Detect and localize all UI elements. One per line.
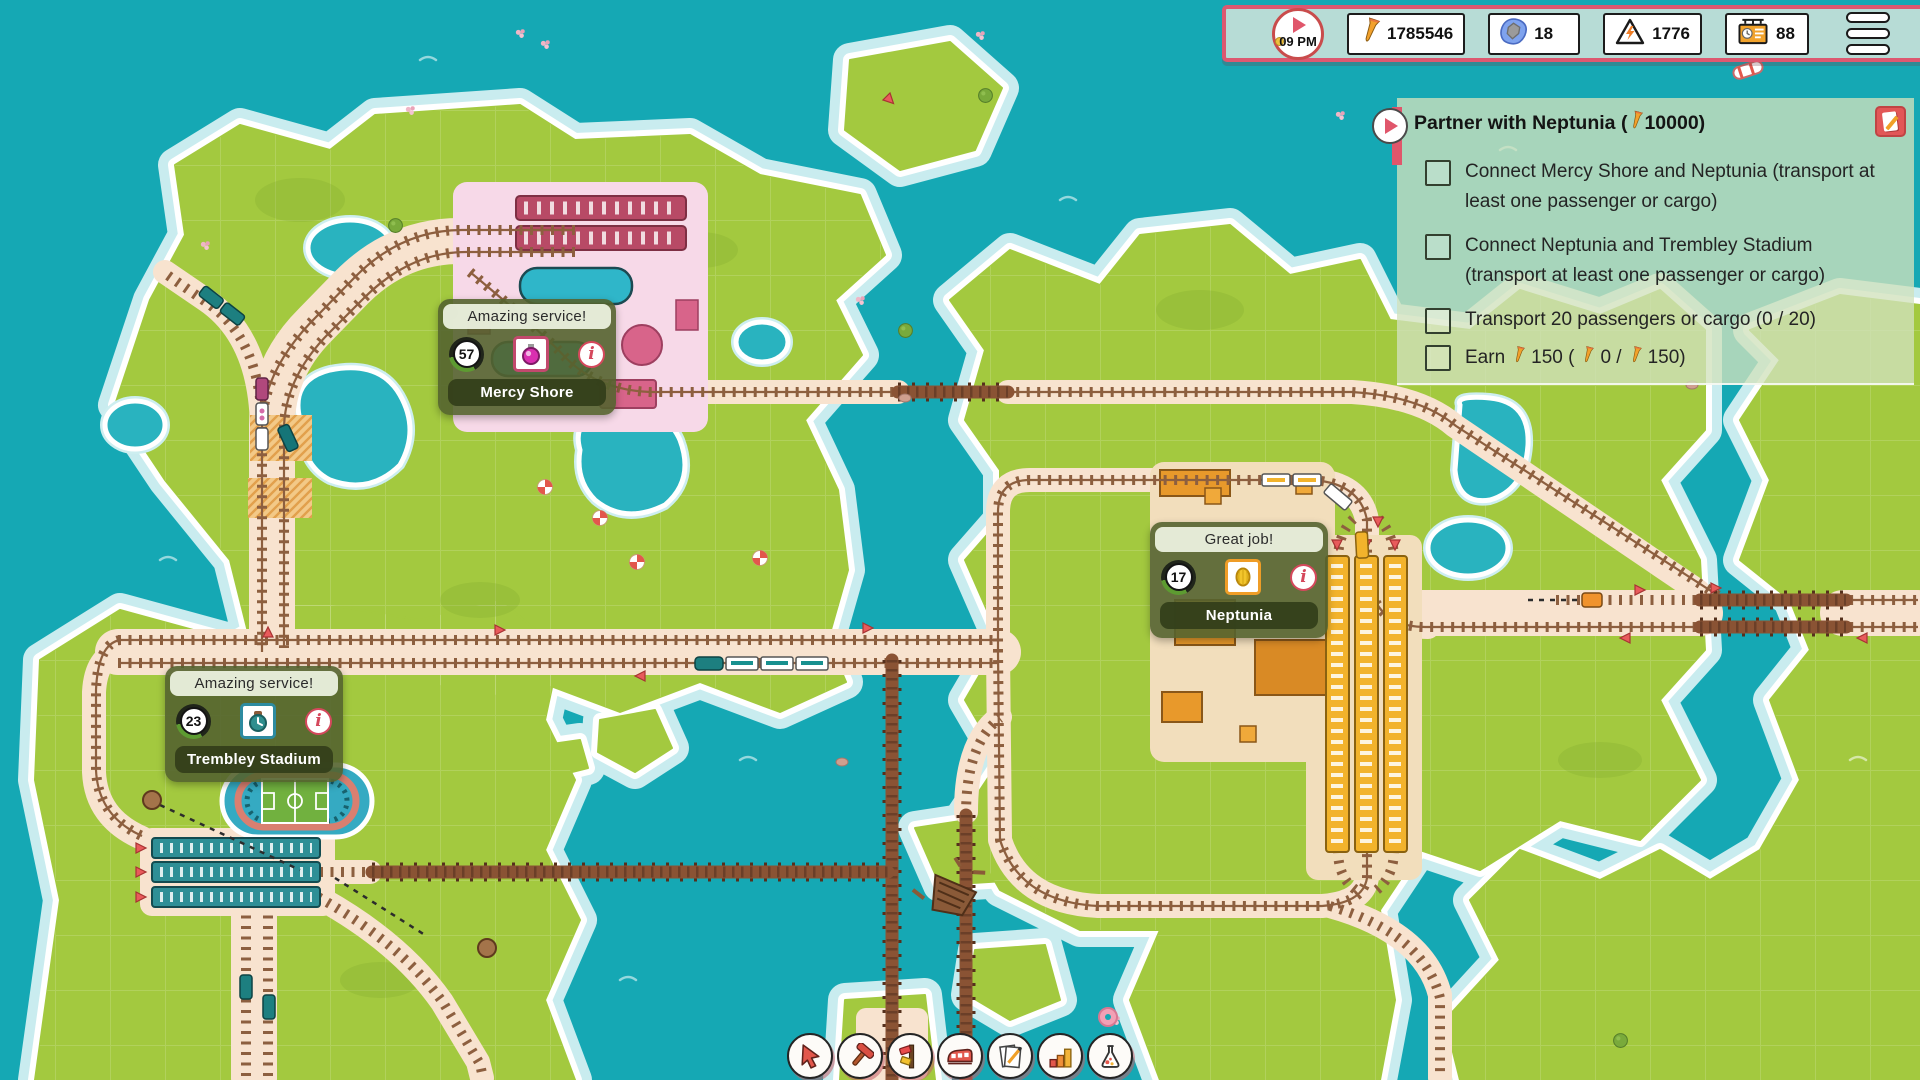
quest-objective: Connect Neptunia and Trembley Stadium (t… xyxy=(1425,231,1914,291)
nail-icon xyxy=(1626,345,1642,371)
objective-checkbox xyxy=(1425,345,1451,371)
quest-objective-earn: Earn 150 ( 0 / 150) xyxy=(1425,345,1914,371)
schedule-icon xyxy=(1737,17,1769,51)
station-banner: Great job! xyxy=(1155,527,1323,552)
stone-icon xyxy=(1500,18,1527,50)
time-label: 09 PM xyxy=(1275,34,1321,49)
station-info-button[interactable]: i xyxy=(1290,564,1317,591)
station-info-button[interactable]: i xyxy=(578,341,605,368)
trains-button[interactable] xyxy=(937,1033,983,1079)
station-info-button[interactable]: i xyxy=(305,708,332,735)
station-card-trembley-stadium[interactable]: Amazing service! 23 i Trembley Stadium xyxy=(165,666,343,782)
station-banner: Amazing service! xyxy=(443,304,611,329)
hud-bar: 09 PM 1785546 18 1776 88 xyxy=(1222,5,1920,62)
contracts-button[interactable] xyxy=(987,1033,1033,1079)
cursor-icon xyxy=(797,1043,824,1070)
station-count: 17 xyxy=(1165,563,1193,591)
stone-counter: 18 xyxy=(1488,13,1580,55)
flask-icon xyxy=(1097,1043,1124,1070)
clock-good-icon xyxy=(240,703,276,739)
quest-title: Partner with Neptunia ( 10000) xyxy=(1397,98,1914,136)
station-progress-ring: 17 xyxy=(1161,560,1196,595)
station-card-mercy-shore[interactable]: Amazing service! 57 i Mercy Shore xyxy=(438,299,616,415)
research-button[interactable] xyxy=(1087,1033,1133,1079)
time-control[interactable]: 09 PM xyxy=(1272,8,1324,60)
melon-good-icon xyxy=(1225,559,1261,595)
menu-button[interactable] xyxy=(1846,12,1890,55)
build-toolbar xyxy=(787,1033,1133,1079)
quest-objectives: Connect Mercy Shore and Neptunia (transp… xyxy=(1425,157,1914,371)
quest-objective: Transport 20 passengers or cargo (0 / 20… xyxy=(1425,305,1914,335)
nail-icon xyxy=(1357,15,1382,51)
signals-button[interactable] xyxy=(887,1033,933,1079)
train-icon xyxy=(946,1042,974,1070)
station-banner: Amazing service! xyxy=(170,671,338,696)
contract-icon xyxy=(997,1043,1024,1070)
money-counter: 1785546 xyxy=(1347,13,1465,55)
chart-icon xyxy=(1047,1043,1074,1070)
statistics-button[interactable] xyxy=(1037,1033,1083,1079)
nail-icon xyxy=(1627,110,1644,137)
objective-checkbox xyxy=(1425,308,1451,334)
hazard-icon xyxy=(1615,18,1645,50)
station-progress-ring: 23 xyxy=(176,704,211,739)
station-name: Neptunia xyxy=(1160,602,1318,629)
quest-objective: Connect Mercy Shore and Neptunia (transp… xyxy=(1425,157,1914,217)
neptunia-platforms[interactable] xyxy=(1326,540,1407,852)
contracts-icon[interactable] xyxy=(1875,106,1906,137)
objective-checkbox xyxy=(1425,160,1451,186)
build-track-button[interactable] xyxy=(837,1033,883,1079)
nail-icon xyxy=(1510,345,1526,371)
hammer-icon xyxy=(847,1043,874,1070)
cosmetics-good-icon xyxy=(513,336,549,372)
station-name: Trembley Stadium xyxy=(175,746,333,773)
trembley-platforms[interactable] xyxy=(136,838,320,907)
select-tool-button[interactable] xyxy=(787,1033,833,1079)
power-counter: 1776 xyxy=(1603,13,1702,55)
station-card-neptunia[interactable]: Great job! 17 i Neptunia xyxy=(1150,522,1328,638)
station-name: Mercy Shore xyxy=(448,379,606,406)
station-count: 57 xyxy=(453,340,481,368)
nail-icon xyxy=(1579,345,1595,371)
objective-checkbox xyxy=(1425,234,1451,260)
quest-play-button[interactable] xyxy=(1372,108,1408,144)
quest-panel: Partner with Neptunia ( 10000) Connect M… xyxy=(1397,98,1914,385)
signal-icon xyxy=(897,1043,924,1070)
station-count: 23 xyxy=(180,707,208,735)
schedule-counter: 88 xyxy=(1725,13,1809,55)
play-icon xyxy=(1293,17,1306,33)
station-progress-ring: 57 xyxy=(449,337,484,372)
game-screen: Amazing service! 57 i Mercy Shore Great … xyxy=(0,0,1920,1080)
